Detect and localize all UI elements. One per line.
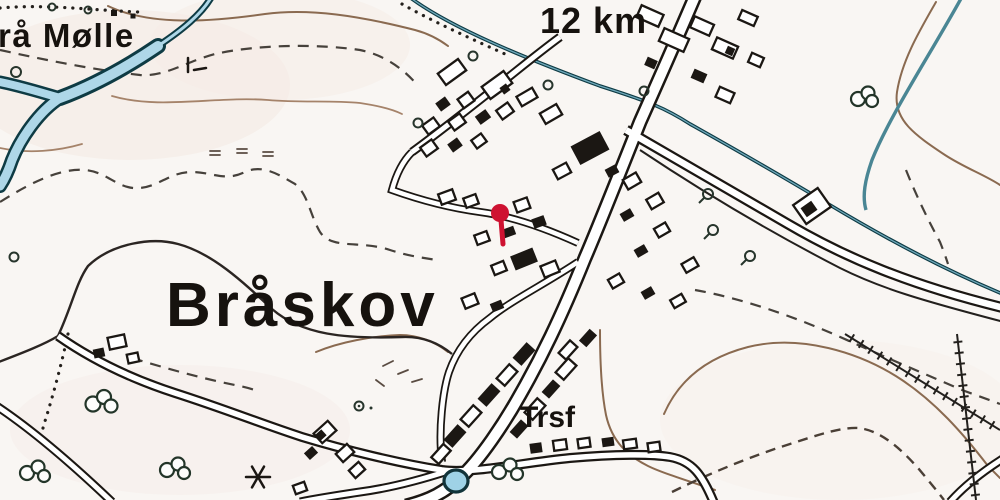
building-filled [111, 10, 117, 16]
power-line-tick [957, 374, 966, 375]
power-line-tick [953, 341, 962, 342]
building [127, 352, 140, 363]
power-line-tick [968, 473, 977, 474]
building [623, 439, 637, 450]
power-line-tick [956, 363, 965, 364]
label-town: Bråskov [166, 271, 439, 340]
building-filled [601, 437, 614, 448]
power-line-tick [971, 494, 980, 495]
building [107, 334, 126, 349]
power-line-tick [970, 484, 979, 485]
power-line-tick [966, 451, 975, 452]
topographic-map[interactable]: rå Mølle 12 km Bråskov Trsf [0, 0, 1000, 500]
power-line-tick [960, 396, 969, 397]
building [577, 438, 590, 449]
map-canvas[interactable]: rå Mølle 12 km Bråskov Trsf [0, 0, 1000, 500]
pond [444, 470, 468, 492]
label-raa-moelle: rå Mølle [0, 17, 135, 54]
label-transformer: Trsf [520, 401, 576, 434]
building [553, 439, 567, 451]
power-line-tick [958, 385, 967, 386]
power-line-tick [962, 418, 971, 419]
power-line-tick [955, 352, 964, 353]
power-line-tick [961, 407, 970, 408]
building [647, 442, 660, 453]
label-distance: 12 km [540, 0, 647, 41]
power-line-tick [965, 440, 974, 441]
power-line-tick [963, 429, 972, 430]
building-filled [529, 442, 542, 454]
power-line-tick [967, 462, 976, 463]
